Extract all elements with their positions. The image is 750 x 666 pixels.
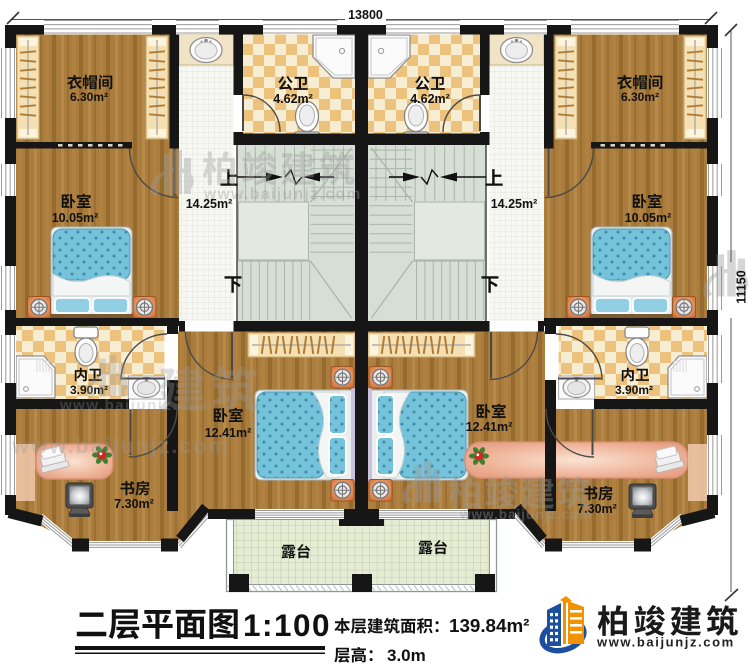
svg-text:13800: 13800 (348, 8, 383, 22)
svg-text:www.baijunjz.com: www.baijunjz.com (11, 434, 230, 458)
svg-text:7.30m²: 7.30m² (114, 497, 154, 511)
svg-text:www.baijunjz.com: www.baijunjz.com (59, 397, 213, 414)
svg-text:4.62m²: 4.62m² (273, 92, 313, 106)
svg-text:3.0m: 3.0m (387, 646, 426, 665)
svg-text:10.05m²: 10.05m² (52, 211, 99, 225)
svg-text:11150: 11150 (735, 270, 749, 303)
svg-text:6.30m²: 6.30m² (70, 90, 108, 104)
svg-text:10.05m²: 10.05m² (625, 211, 672, 225)
svg-text:139.84m²: 139.84m² (449, 615, 529, 636)
svg-text:www.baijunjz.com: www.baijunjz.com (596, 635, 735, 650)
svg-text:12.41m²: 12.41m² (466, 420, 513, 434)
svg-text:6.30m²: 6.30m² (621, 90, 659, 104)
svg-text:3.90m²: 3.90m² (615, 383, 653, 397)
svg-text:www.baijunjz.com: www.baijunjz.com (203, 186, 362, 203)
svg-text:14.25m²: 14.25m² (491, 197, 538, 211)
svg-text:1:100: 1:100 (243, 607, 331, 643)
svg-text:4.62m²: 4.62m² (410, 92, 450, 106)
svg-text:www.baijunjz.com: www.baijunjz.com (459, 507, 593, 522)
